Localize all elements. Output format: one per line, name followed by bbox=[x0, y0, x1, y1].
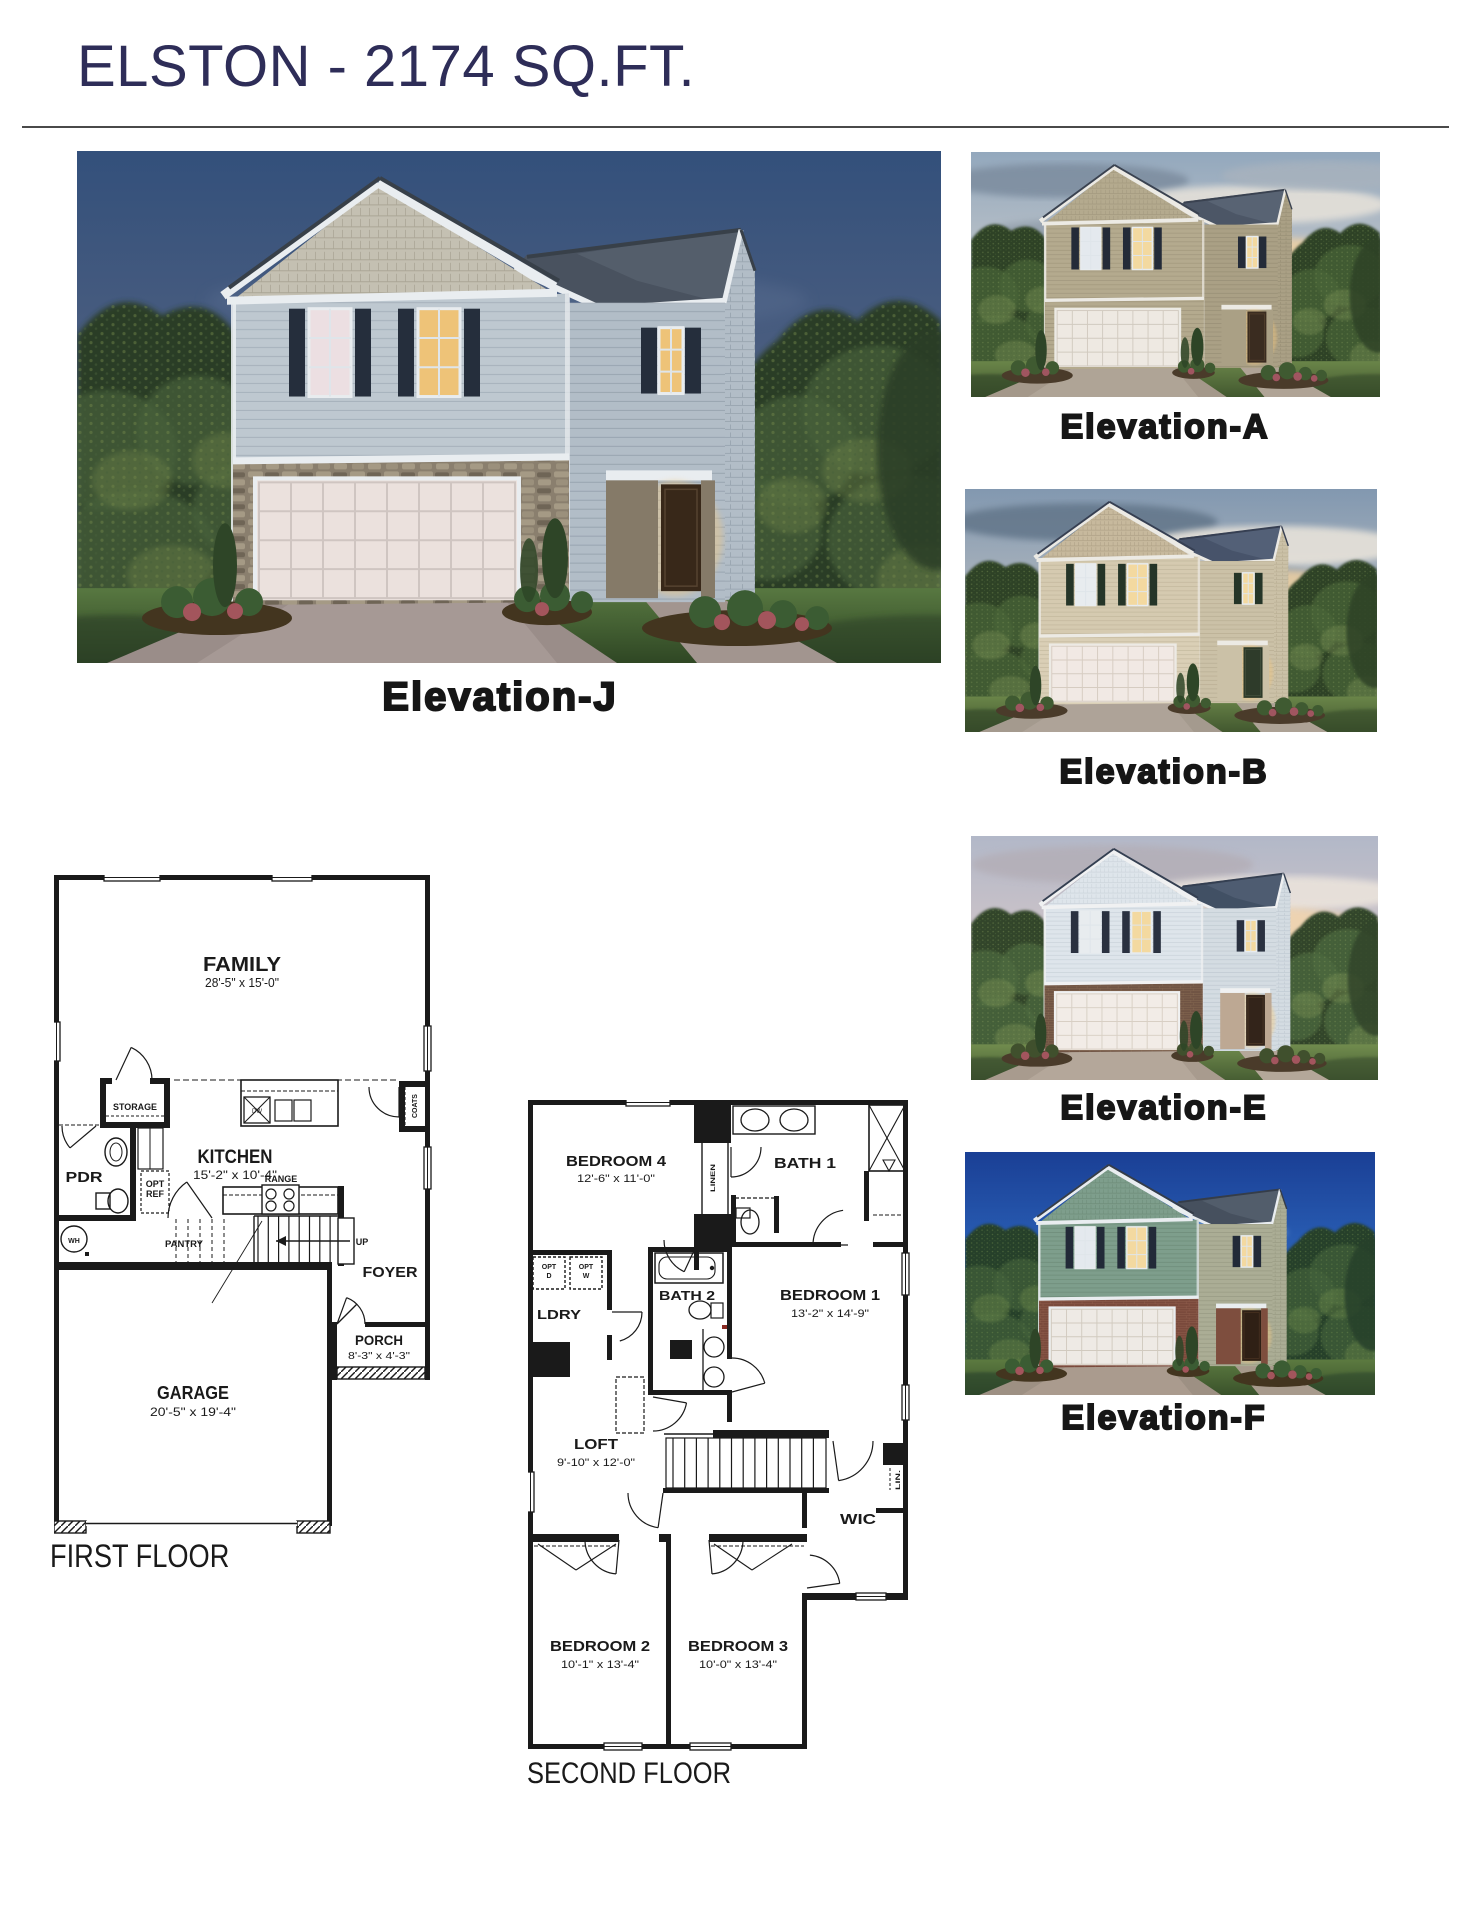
svg-text:10'-0" x 13'-4": 10'-0" x 13'-4" bbox=[699, 1659, 777, 1671]
svg-text:BEDROOM 3: BEDROOM 3 bbox=[688, 1638, 788, 1655]
svg-text:PORCH: PORCH bbox=[355, 1332, 403, 1348]
svg-text:STORAGE: STORAGE bbox=[113, 1102, 157, 1112]
svg-text:REF: REF bbox=[146, 1189, 165, 1199]
svg-text:PANTRY: PANTRY bbox=[165, 1239, 203, 1249]
svg-text:OPT: OPT bbox=[542, 1264, 557, 1271]
svg-text:LIN.: LIN. bbox=[895, 1470, 902, 1490]
svg-text:KITCHEN: KITCHEN bbox=[198, 1147, 273, 1168]
svg-text:GARAGE: GARAGE bbox=[157, 1383, 229, 1403]
svg-text:W: W bbox=[583, 1273, 590, 1280]
svg-text:9'-10" x 12'-0": 9'-10" x 12'-0" bbox=[557, 1457, 635, 1469]
svg-text:13'-2" x 14'-9": 13'-2" x 14'-9" bbox=[791, 1308, 869, 1320]
svg-text:OPT: OPT bbox=[579, 1264, 594, 1271]
svg-text:BATH 2: BATH 2 bbox=[659, 1288, 715, 1303]
svg-text:COATS: COATS bbox=[412, 1094, 419, 1118]
svg-text:BEDROOM 2: BEDROOM 2 bbox=[550, 1638, 650, 1655]
svg-text:FAMILY: FAMILY bbox=[203, 954, 282, 976]
svg-text:FOYER: FOYER bbox=[363, 1264, 418, 1281]
svg-text:DW: DW bbox=[252, 1109, 262, 1115]
svg-text:WH: WH bbox=[68, 1238, 80, 1245]
svg-text:OPT: OPT bbox=[146, 1179, 165, 1189]
svg-text:8'-3" x 4'-3": 8'-3" x 4'-3" bbox=[348, 1351, 411, 1362]
svg-text:LDRY: LDRY bbox=[537, 1307, 581, 1322]
svg-text:BEDROOM 4: BEDROOM 4 bbox=[566, 1153, 667, 1170]
svg-text:28'-5" x 15'-0": 28'-5" x 15'-0" bbox=[205, 976, 279, 990]
svg-text:RANGE: RANGE bbox=[265, 1174, 298, 1184]
svg-text:BATH 1: BATH 1 bbox=[774, 1155, 836, 1172]
svg-text:LOFT: LOFT bbox=[574, 1436, 618, 1453]
svg-text:12'-6" x 11'-0": 12'-6" x 11'-0" bbox=[577, 1173, 655, 1185]
svg-text:UP: UP bbox=[356, 1237, 369, 1247]
svg-text:10'-1" x 13'-4": 10'-1" x 13'-4" bbox=[561, 1659, 639, 1671]
svg-text:LINEN: LINEN bbox=[710, 1164, 717, 1192]
svg-text:20'-5" x 19'-4": 20'-5" x 19'-4" bbox=[150, 1405, 236, 1419]
svg-text:D: D bbox=[546, 1273, 551, 1280]
svg-text:BEDROOM 1: BEDROOM 1 bbox=[780, 1287, 880, 1304]
svg-text:WIC: WIC bbox=[840, 1511, 876, 1528]
svg-text:PDR: PDR bbox=[66, 1169, 103, 1186]
